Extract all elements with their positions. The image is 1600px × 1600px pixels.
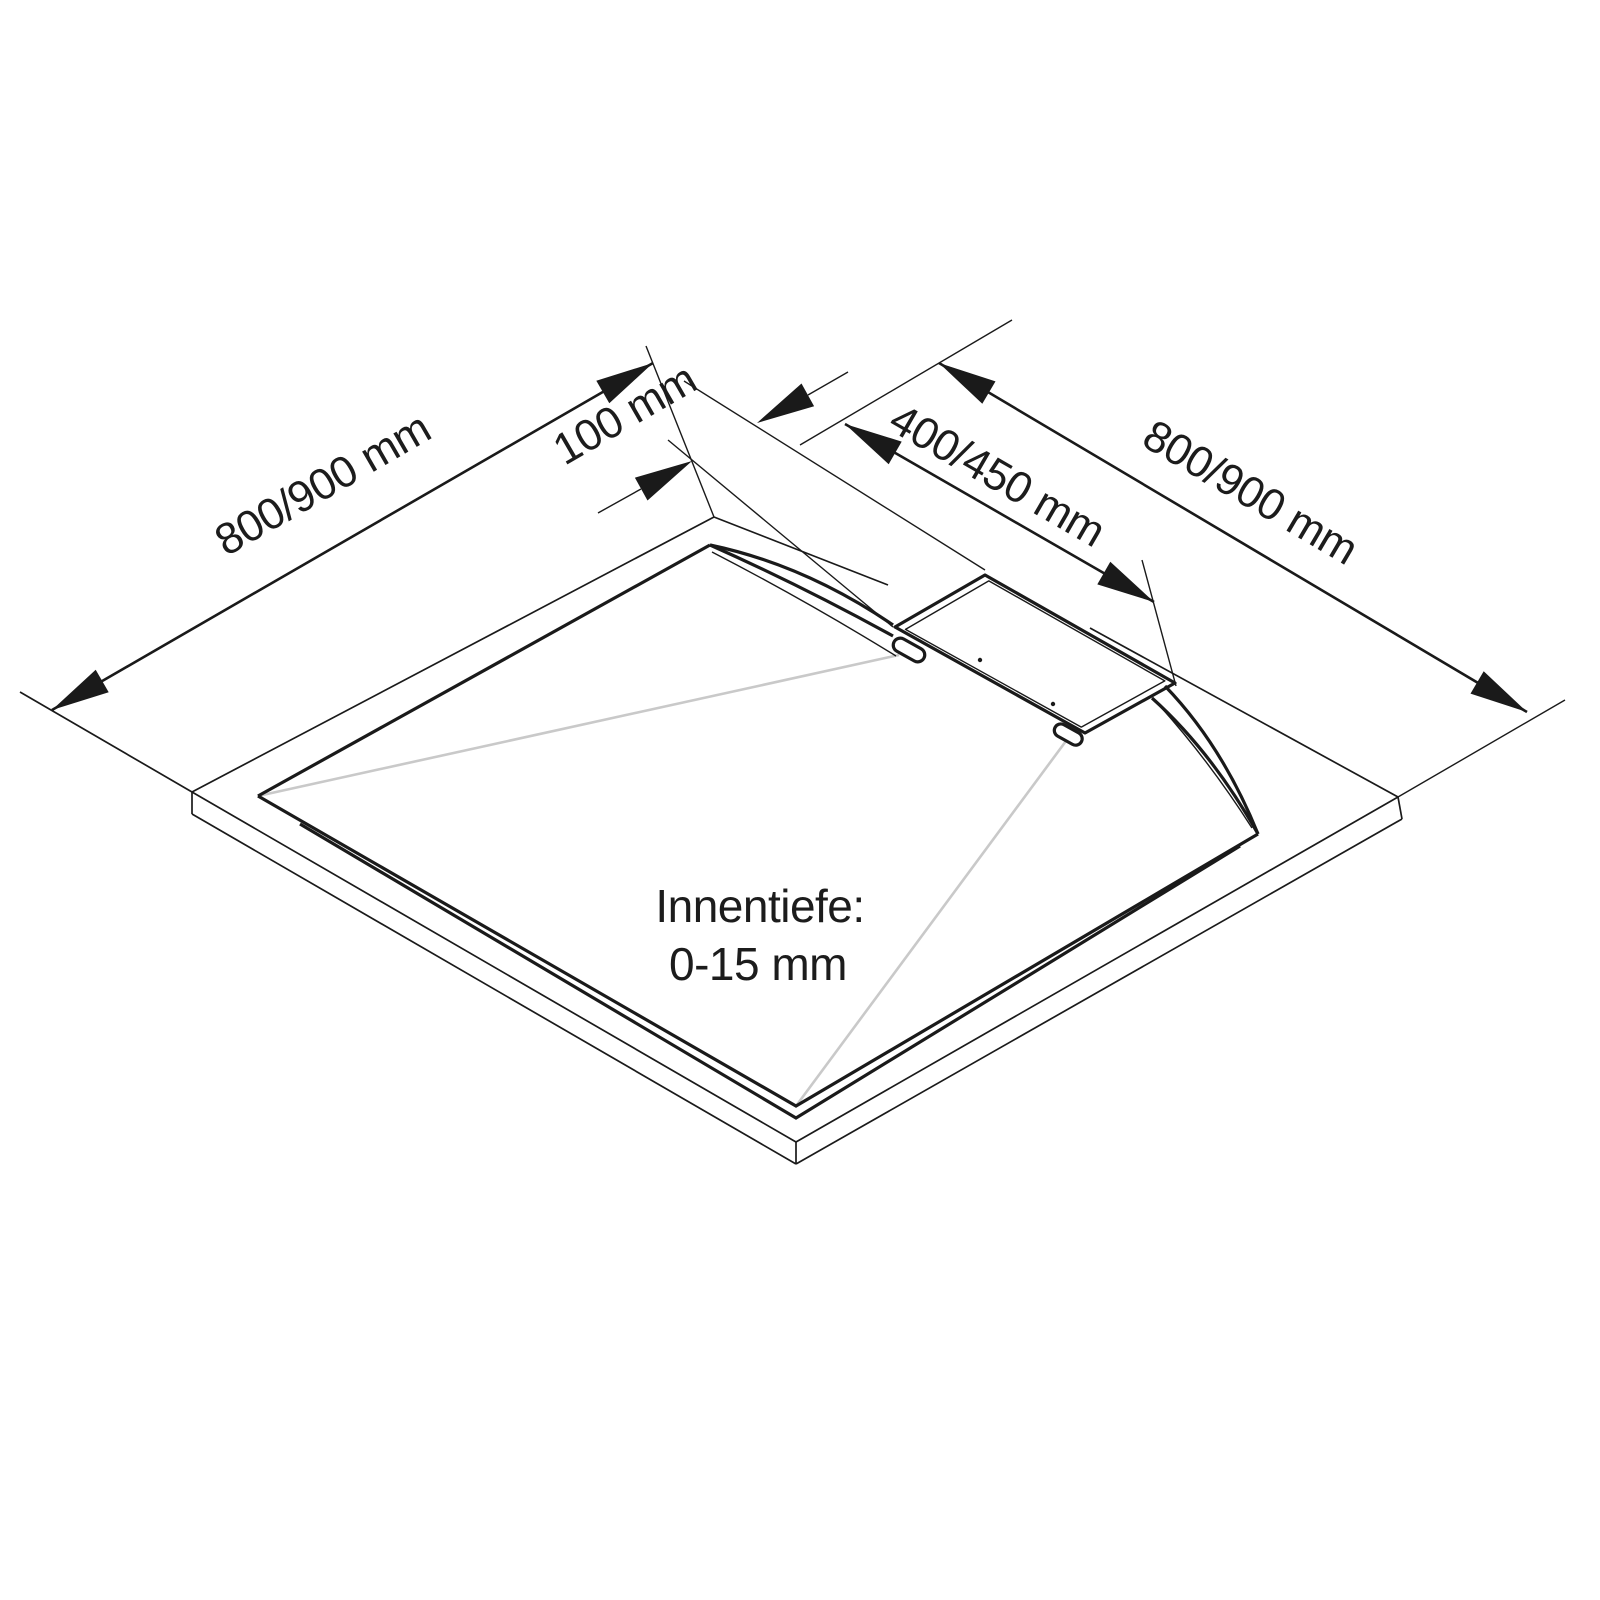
depth-note-line2: 0-15 mm bbox=[669, 938, 847, 990]
shower-tray-diagram: 800/900 mm 100 mm 400/450 mm 800/900 mm … bbox=[0, 0, 1600, 1600]
cover-mark-1 bbox=[978, 658, 982, 662]
cover-mark-2 bbox=[1051, 702, 1055, 706]
diagram-canvas: 800/900 mm 100 mm 400/450 mm 800/900 mm … bbox=[0, 0, 1600, 1600]
background bbox=[0, 0, 1600, 1600]
depth-note-line1: Innentiefe: bbox=[655, 880, 864, 932]
